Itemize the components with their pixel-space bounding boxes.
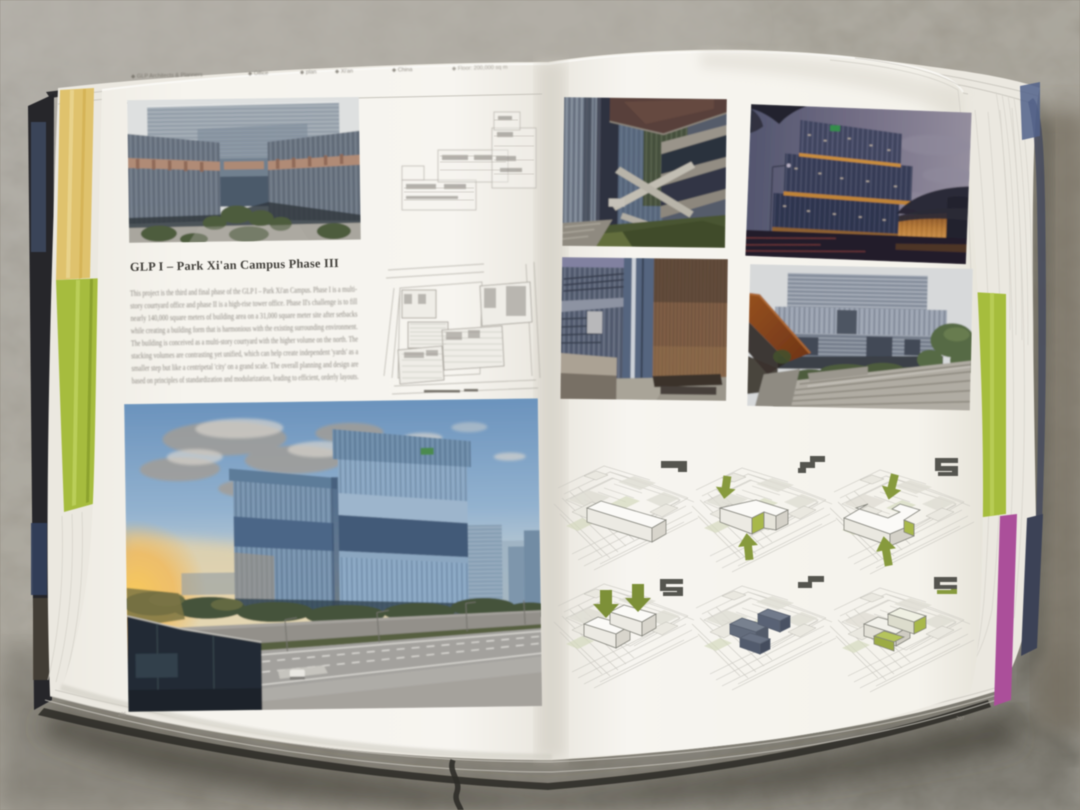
- svg-text:◆ Office: ◆ Office: [248, 71, 269, 77]
- svg-text:◆ Xi'an: ◆ Xi'an: [335, 69, 353, 75]
- svg-text:◆ China: ◆ China: [392, 67, 414, 74]
- svg-text:206: 206: [118, 712, 127, 718]
- svg-text:◆ plan: ◆ plan: [300, 69, 317, 75]
- svg-text:207: 207: [956, 716, 965, 722]
